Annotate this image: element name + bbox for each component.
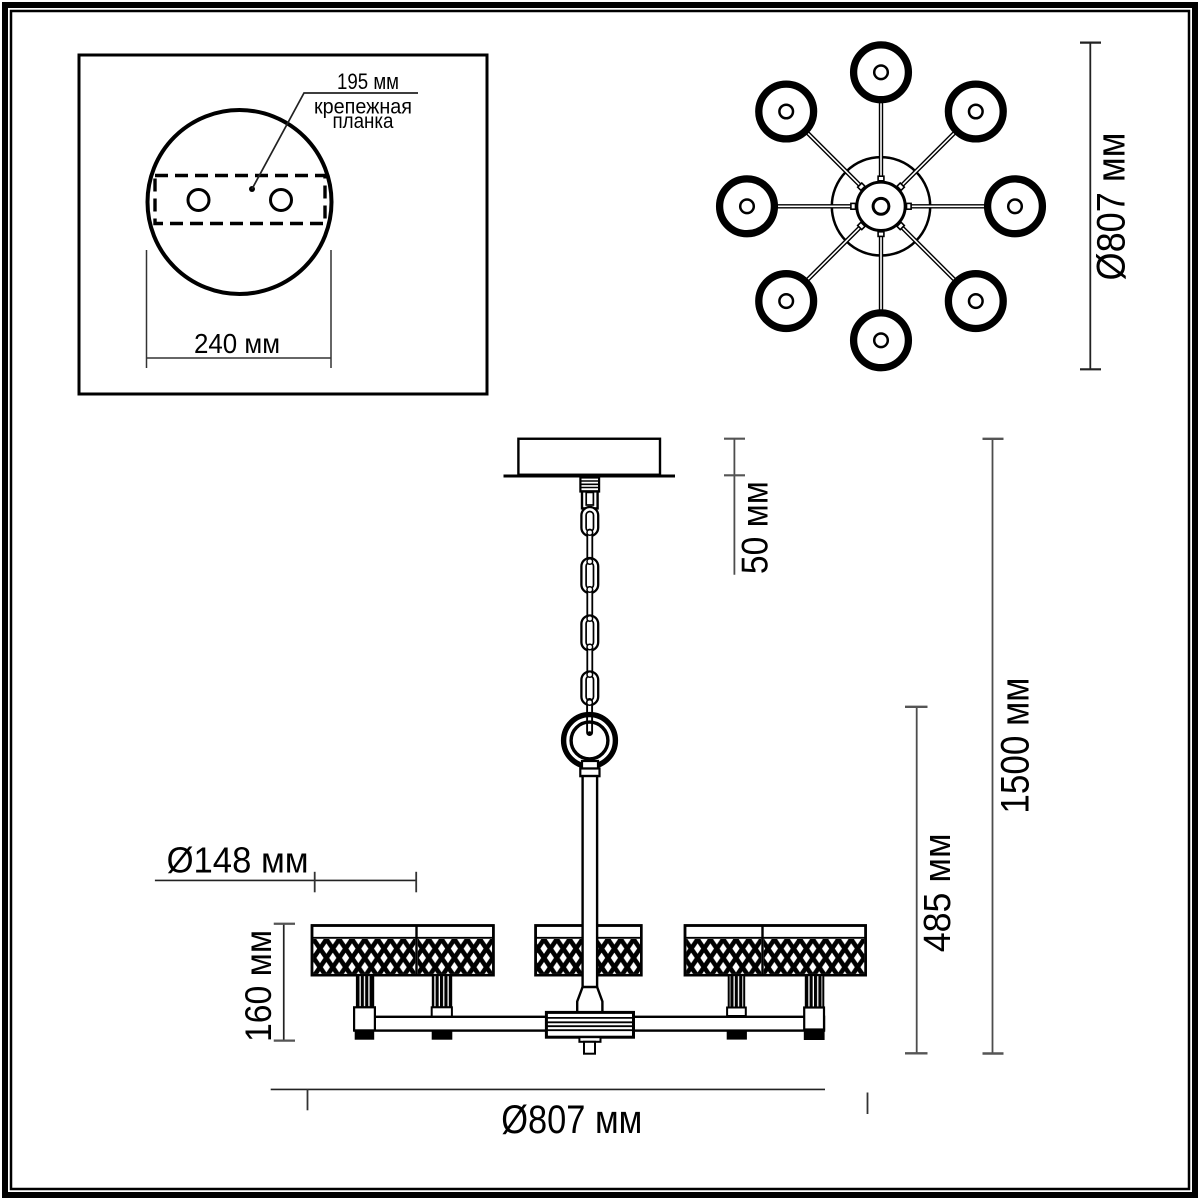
svg-text:планка: планка — [333, 110, 394, 133]
svg-text:485 мм: 485 мм — [917, 833, 959, 952]
svg-text:Ø807 мм: Ø807 мм — [501, 1098, 642, 1142]
svg-text:195 мм: 195 мм — [337, 69, 399, 94]
svg-text:160 мм: 160 мм — [238, 930, 279, 1042]
svg-text:1500 мм: 1500 мм — [993, 678, 1037, 814]
svg-text:Ø807 мм: Ø807 мм — [1090, 133, 1134, 281]
svg-text:50 мм: 50 мм — [735, 481, 776, 574]
svg-text:Ø148 мм: Ø148 мм — [167, 839, 309, 880]
svg-text:240 мм: 240 мм — [194, 328, 280, 359]
